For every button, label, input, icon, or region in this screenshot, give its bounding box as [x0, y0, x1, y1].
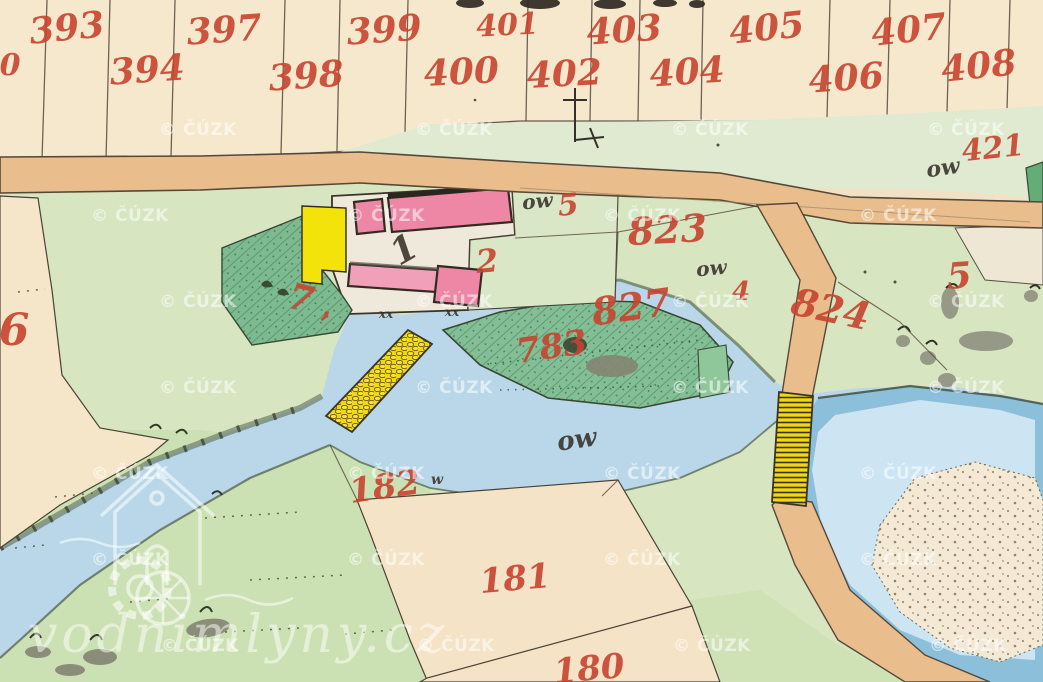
cuzk-watermark: © ČÚZK	[859, 548, 937, 570]
map-annotation: ow	[695, 255, 728, 282]
parcel-number-label: ,	[320, 289, 331, 324]
cuzk-watermark: © ČÚZK	[91, 204, 169, 226]
parcel-number-label: 400	[423, 49, 500, 95]
cuzk-watermark: © ČÚZK	[347, 462, 425, 484]
parcel-number-label: 0	[0, 48, 21, 83]
parcel-number-label: 405	[727, 3, 806, 53]
cuzk-watermark: © ČÚZK	[859, 204, 937, 226]
map-annotation: w	[431, 472, 444, 488]
parcel-number-label: 393	[27, 3, 106, 53]
cuzk-watermark: © ČÚZK	[415, 376, 493, 398]
cadastral-map: vodnimlyny.cz 39339739940140340540703943…	[0, 0, 1043, 682]
parcel-number-label: 397	[185, 6, 263, 53]
cuzk-watermark: © ČÚZK	[671, 118, 749, 140]
cuzk-watermark: © ČÚZK	[603, 548, 681, 570]
parcel-number-label: 408	[939, 41, 1018, 91]
cuzk-watermark: © ČÚZK	[927, 290, 1005, 312]
map-annotation: ow	[521, 188, 554, 215]
cuzk-watermark: © ČÚZK	[159, 376, 237, 398]
parcel-number-label: 398	[267, 52, 345, 99]
cuzk-watermark: © ČÚZK	[927, 118, 1005, 140]
parcel-number-label: 5	[556, 187, 580, 224]
cuzk-watermark: © ČÚZK	[927, 376, 1005, 398]
cuzk-watermark: © ČÚZK	[159, 118, 237, 140]
cuzk-watermark: © ČÚZK	[603, 462, 681, 484]
cuzk-watermark: © ČÚZK	[91, 548, 169, 570]
cuzk-watermark: © ČÚZK	[603, 204, 681, 226]
hatched-bridge	[772, 392, 813, 506]
parcel-number-label: 404	[648, 48, 726, 95]
map-annotation: xx	[378, 307, 394, 321]
parcel-number-label: 181	[478, 556, 552, 602]
cuzk-watermark: © ČÚZK	[859, 462, 937, 484]
parcel-number-label: 6	[0, 305, 29, 356]
parcel-number-label: 401	[475, 6, 539, 44]
cuzk-watermark: © ČÚZK	[929, 634, 1007, 656]
map-annotation: ow	[555, 422, 600, 457]
parcel-number-label: 406	[807, 54, 885, 101]
parcel-number-label: 394	[108, 46, 186, 93]
parcel-number-label: 407	[869, 5, 948, 55]
cuzk-watermark: © ČÚZK	[159, 290, 237, 312]
parcel-number-label: 180	[552, 646, 627, 682]
cuzk-watermark: © ČÚZK	[671, 290, 749, 312]
cuzk-watermark: © ČÚZK	[347, 204, 425, 226]
cuzk-watermark: © ČÚZK	[415, 290, 493, 312]
cuzk-watermark: © ČÚZK	[347, 548, 425, 570]
map-canvas[interactable]: vodnimlyny.cz 39339739940140340540703943…	[0, 0, 1043, 682]
cuzk-watermark: © ČÚZK	[415, 118, 493, 140]
cuzk-watermark: © ČÚZK	[417, 634, 495, 656]
parcel-number-label: 402	[526, 51, 603, 97]
parcel-number-label: 403	[585, 6, 663, 53]
parcel-number-label: 2	[473, 241, 499, 281]
cuzk-watermark: © ČÚZK	[671, 376, 749, 398]
cuzk-watermark: © ČÚZK	[91, 462, 169, 484]
map-annotation: ow	[925, 153, 963, 184]
vodnimlyny-logo-text: vodnimlyny.cz	[28, 605, 448, 665]
cuzk-watermark: © ČÚZK	[673, 634, 751, 656]
parcel-number-label: 399	[345, 6, 423, 53]
cuzk-watermark: © ČÚZK	[161, 634, 239, 656]
island-grove	[586, 355, 638, 377]
